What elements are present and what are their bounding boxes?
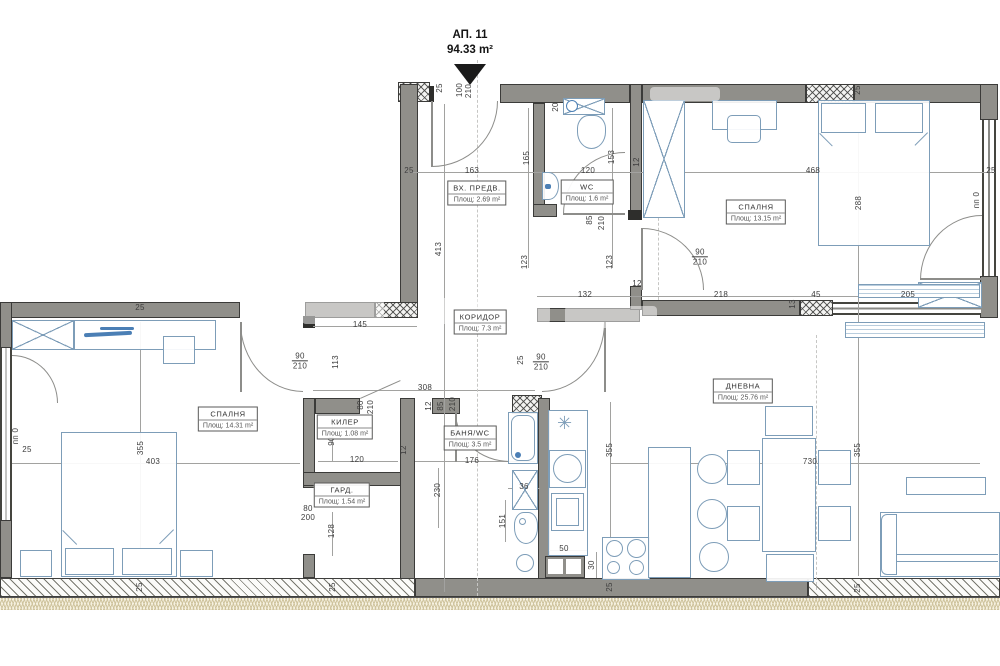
- dim-label: 176: [465, 457, 479, 465]
- chair: [727, 115, 761, 143]
- room-area: Площ: 1.54 m²: [315, 497, 369, 507]
- wall-wc-foot: [533, 204, 557, 217]
- dim-label: 25: [329, 582, 337, 592]
- pillow: [122, 548, 172, 575]
- dim-label: 25: [136, 582, 144, 592]
- dim-label: 413: [435, 242, 443, 256]
- door-jamb: [429, 86, 434, 102]
- dim-label: 153: [608, 150, 616, 164]
- door-leaf: [604, 322, 606, 392]
- dim-label: 132: [578, 291, 592, 299]
- coffee-table: [906, 477, 986, 495]
- room-area: Площ: 25.76 m²: [714, 393, 772, 403]
- dim-line: [596, 552, 597, 578]
- wall-left-upper: [0, 302, 12, 348]
- dim-label: 355: [606, 443, 614, 457]
- washer-drum: [566, 100, 578, 112]
- dining-chair: [818, 506, 851, 541]
- room-name: СПАЛНЯ: [199, 408, 257, 421]
- faucet: [545, 184, 551, 189]
- nightstand: [20, 550, 52, 577]
- door-jamb: [628, 210, 642, 220]
- dim-label: 36: [519, 483, 529, 491]
- dim-label: 308: [418, 384, 432, 392]
- dim-label: 25: [854, 85, 862, 95]
- watermark: [565, 306, 657, 328]
- dim-label: 12: [632, 280, 642, 288]
- dim-label: пп 0: [973, 192, 981, 209]
- wall-left-lower: [0, 520, 12, 578]
- sofa-back-line: [897, 554, 998, 555]
- toilet: [577, 115, 606, 149]
- wall-right-top: [980, 84, 998, 120]
- dim-label: 730: [803, 458, 817, 466]
- burner: [606, 540, 623, 557]
- dim-label: 230: [434, 483, 442, 497]
- dining-chair: [818, 450, 851, 485]
- dim-label: 468: [806, 167, 820, 175]
- room-label-4: КОРИДОРПлощ: 7.3 m²: [454, 310, 507, 335]
- dim-label: 30: [588, 560, 596, 570]
- dim-line: [438, 468, 439, 528]
- room-label-6: КИЛЕРПлощ: 1.08 m²: [317, 415, 373, 440]
- dim-label: 12: [633, 157, 641, 167]
- pillow: [821, 103, 866, 133]
- dim-label: 25: [22, 446, 32, 454]
- dim-label: 25: [606, 582, 614, 592]
- room-label-5: СПАЛНЯПлощ: 14.31 m²: [198, 407, 258, 432]
- room-area: Площ: 3.5 m²: [445, 440, 496, 450]
- radiator: [845, 322, 985, 338]
- bar-stool: [697, 454, 727, 484]
- dim-label: 165: [523, 151, 531, 165]
- dim-label: 25: [854, 583, 862, 593]
- dim-label: 25: [135, 304, 145, 312]
- sofa-back-line: [897, 561, 998, 562]
- dim-label: 100: [456, 83, 464, 97]
- room-area: Площ: 14.31 m²: [199, 421, 257, 431]
- dim-label: 90210: [292, 351, 308, 370]
- dim-label: 12: [425, 401, 433, 411]
- dim-label: 355: [137, 441, 145, 455]
- dim-label: 123: [606, 255, 614, 269]
- dim-label: 128: [328, 524, 336, 538]
- side-table: [163, 336, 195, 364]
- apartment-number: АП. 11: [447, 28, 493, 43]
- dim-label: 90210: [692, 247, 708, 266]
- wall-bedroom-south: [642, 300, 800, 316]
- dim-label: 123: [521, 255, 529, 269]
- dim-label: 50: [559, 545, 569, 553]
- dim-label: 403: [146, 458, 160, 466]
- sofa: [880, 512, 1000, 577]
- room-label-9: ДНЕВНАПлощ: 25.76 m²: [713, 379, 773, 404]
- bar-stool: [697, 499, 727, 529]
- wall-bottom-left: [0, 578, 415, 597]
- room-name: СПАЛНЯ: [727, 201, 785, 214]
- watermark: [302, 296, 384, 324]
- dim-label: 210: [367, 400, 375, 414]
- room-area: Площ: 1.08 m²: [318, 429, 372, 439]
- room-label-1: ВХ. ПРЕДВ.Площ: 2.69 m²: [447, 181, 506, 206]
- room-name: КИЛЕР: [318, 416, 372, 429]
- room-label-8: ГАРД.Площ: 1.54 m²: [314, 483, 370, 508]
- dim-label: 85: [586, 215, 594, 225]
- wardrobe: [643, 100, 685, 218]
- dim-label: 163: [465, 167, 479, 175]
- boiler: [516, 554, 534, 572]
- watermark: [650, 87, 720, 101]
- room-area: Площ: 1.6 m²: [562, 194, 613, 204]
- window-swing-arc: [12, 355, 58, 403]
- cabinet-door: [548, 559, 563, 574]
- room-label-2: WCПлощ: 1.6 m²: [561, 180, 614, 205]
- wall-mid-left: [0, 302, 240, 318]
- dim-label: 80: [357, 400, 365, 410]
- room-label-3: СПАЛНЯПлощ: 13.15 m²: [726, 200, 786, 225]
- oven-inner: [556, 498, 579, 526]
- pillow: [875, 103, 923, 133]
- wardrobe: [12, 320, 74, 350]
- burner: [629, 560, 644, 575]
- dresser-decor: [100, 327, 134, 330]
- dim-line: [528, 108, 529, 268]
- dim-label: 355: [854, 443, 862, 457]
- dim-label: 205: [901, 291, 915, 299]
- room-name: КОРИДОР: [455, 311, 506, 324]
- room-name: БАНЯ/WC: [445, 427, 496, 440]
- wall-gard-left: [303, 554, 315, 578]
- wall-bottom-right: [808, 578, 1000, 597]
- room-name: ГАРД.: [315, 484, 369, 497]
- dim-label: 288: [855, 196, 863, 210]
- nightstand: [180, 550, 213, 577]
- dim-label: 218: [714, 291, 728, 299]
- dim-label: 200: [301, 514, 315, 522]
- wall-wc-right: [630, 84, 642, 216]
- dining-chair: [727, 450, 760, 485]
- dim-label: 120: [350, 456, 364, 464]
- dim-label: 210: [598, 216, 606, 230]
- dim-label: 90210: [533, 352, 549, 371]
- dim-label: 25: [404, 167, 414, 175]
- wall-insulation-bedroom: [800, 300, 833, 316]
- dim-label: 151: [499, 514, 507, 528]
- dim-line: [444, 104, 445, 592]
- sofa-armrest: [881, 514, 897, 575]
- dim-label: 85: [437, 401, 445, 411]
- room-name: ВХ. ПРЕДВ.: [448, 182, 505, 195]
- apartment-area: 94.33 m²: [447, 43, 493, 58]
- window-right: [982, 120, 996, 276]
- apartment-marker-icon: [454, 64, 486, 85]
- dim-label: 12: [400, 445, 408, 455]
- floor-plan: АП. 11 94.33 m²: [0, 0, 1000, 666]
- room-area: Площ: 2.69 m²: [448, 195, 505, 205]
- dining-chair: [765, 406, 813, 436]
- dim-label: 113: [332, 355, 340, 369]
- burner: [607, 561, 620, 574]
- radiator: [858, 284, 980, 298]
- wall-kiler-right: [400, 398, 415, 580]
- sink-basin: [553, 454, 582, 483]
- dim-label: 25: [986, 167, 996, 175]
- room-name: WC: [562, 181, 613, 194]
- room-area: Площ: 13.15 m²: [727, 214, 785, 224]
- room-name: ДНЕВНА: [714, 380, 772, 393]
- dining-chair: [766, 554, 814, 582]
- drain: [515, 452, 521, 458]
- kitchen-vent-icon: ✳: [557, 414, 572, 432]
- dim-label: 20: [552, 102, 560, 112]
- room-area: Площ: 7.3 m²: [455, 324, 506, 334]
- dim-label: пп 0: [12, 428, 20, 445]
- bar-stool: [699, 542, 729, 572]
- dining-table: [762, 438, 816, 552]
- toilet: [514, 512, 538, 544]
- door-arc-entry: [432, 101, 498, 167]
- dim-label: 25: [517, 355, 525, 365]
- pillow: [65, 548, 114, 575]
- dim-label: 145: [353, 321, 367, 329]
- door-arc-living: [542, 322, 605, 392]
- dim-label: 25: [436, 83, 444, 93]
- room-label-7: БАНЯ/WCПлощ: 3.5 m²: [444, 426, 497, 451]
- thermal-insulation-strip: [0, 597, 1000, 610]
- cabinet-door: [566, 559, 581, 574]
- wall-entry-left: [400, 84, 418, 308]
- burner: [627, 539, 646, 558]
- toilet-detail: [519, 518, 526, 525]
- dim-label: 210: [465, 84, 473, 98]
- wall-kiler-top: [315, 398, 360, 414]
- dining-chair: [727, 506, 760, 541]
- dim-label: 80: [303, 505, 313, 513]
- wall-right-mid: [980, 276, 998, 318]
- apartment-title: АП. 11 94.33 m²: [447, 28, 493, 58]
- dim-label: 13: [789, 299, 797, 309]
- dim-label: 120: [581, 167, 595, 175]
- dim-label: 210: [449, 397, 457, 411]
- kitchen-island: [648, 447, 691, 578]
- dim-label: 45: [811, 291, 821, 299]
